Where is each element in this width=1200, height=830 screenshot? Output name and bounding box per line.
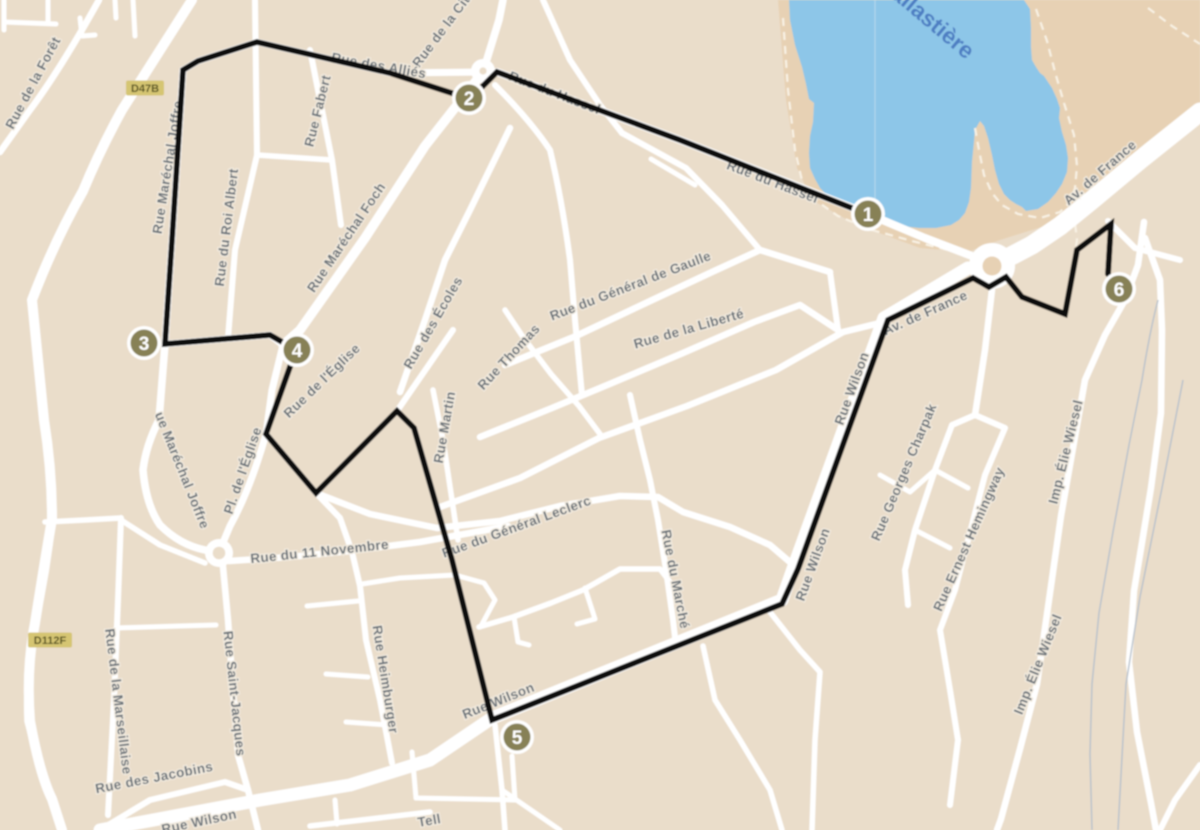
svg-text:3: 3 bbox=[139, 334, 150, 355]
svg-text:1: 1 bbox=[863, 205, 874, 226]
svg-text:6: 6 bbox=[1114, 280, 1125, 301]
svg-text:D47B: D47B bbox=[131, 83, 159, 95]
svg-text:5: 5 bbox=[512, 728, 523, 749]
svg-text:D112F: D112F bbox=[34, 635, 67, 647]
svg-text:4: 4 bbox=[292, 341, 303, 362]
svg-text:2: 2 bbox=[464, 89, 475, 110]
